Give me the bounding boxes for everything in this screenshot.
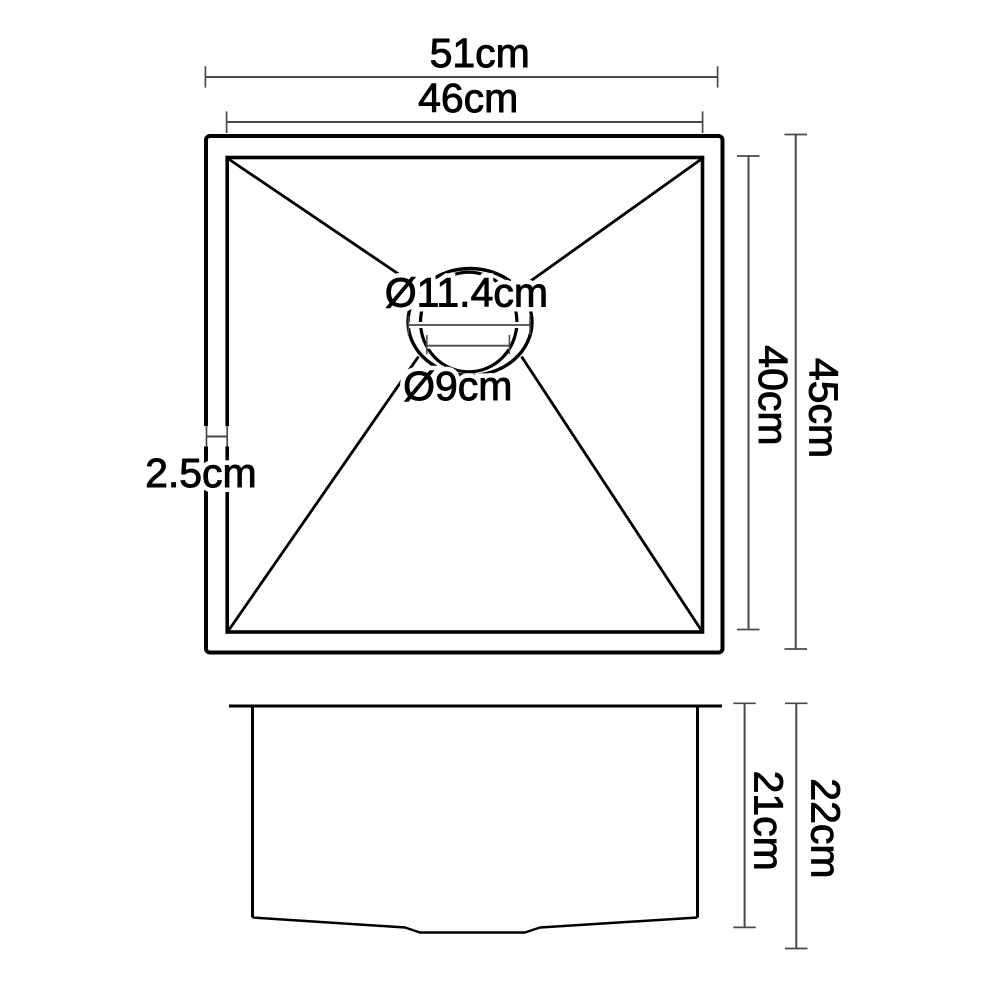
svg-text:21cm: 21cm — [746, 771, 792, 871]
svg-text:22cm: 22cm — [802, 778, 848, 878]
svg-text:2.5cm: 2.5cm — [145, 450, 257, 496]
svg-text:45cm: 45cm — [801, 358, 847, 458]
svg-text:40cm: 40cm — [750, 345, 796, 445]
svg-text:51cm: 51cm — [430, 30, 530, 76]
svg-text:Ø11.4cm: Ø11.4cm — [385, 270, 548, 316]
svg-text:46cm: 46cm — [418, 75, 518, 121]
svg-text:Ø9cm: Ø9cm — [403, 363, 512, 409]
